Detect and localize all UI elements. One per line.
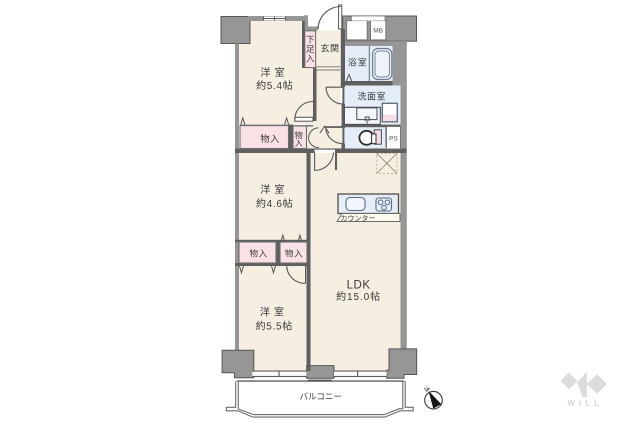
svg-text:物入: 物入 bbox=[249, 247, 267, 258]
svg-text:下: 下 bbox=[306, 35, 315, 45]
svg-text:PS: PS bbox=[389, 136, 398, 143]
svg-text:物入: 物入 bbox=[260, 133, 280, 144]
svg-text:約5.4帖: 約5.4帖 bbox=[256, 79, 293, 92]
svg-text:バルコニー: バルコニー bbox=[300, 392, 342, 402]
svg-text:WILL: WILL bbox=[568, 399, 604, 408]
svg-text:カウンター: カウンター bbox=[341, 213, 376, 222]
svg-text:玄関: 玄関 bbox=[320, 43, 339, 54]
svg-text:約5.5帖: 約5.5帖 bbox=[256, 320, 293, 333]
svg-text:浴室: 浴室 bbox=[348, 56, 368, 67]
svg-text:MB: MB bbox=[373, 28, 383, 35]
svg-text:洋室: 洋室 bbox=[260, 306, 288, 319]
svg-text:物入: 物入 bbox=[285, 247, 303, 258]
svg-text:足: 足 bbox=[306, 44, 315, 54]
svg-text:LDK: LDK bbox=[347, 279, 371, 291]
svg-text:洗面室: 洗面室 bbox=[358, 90, 387, 101]
svg-text:洋室: 洋室 bbox=[260, 183, 288, 196]
svg-text:入: 入 bbox=[295, 139, 303, 148]
svg-text:洋室: 洋室 bbox=[261, 66, 289, 79]
svg-text:約15.0帖: 約15.0帖 bbox=[336, 290, 381, 303]
svg-text:約4.6帖: 約4.6帖 bbox=[256, 197, 293, 210]
svg-text:入: 入 bbox=[306, 54, 315, 64]
